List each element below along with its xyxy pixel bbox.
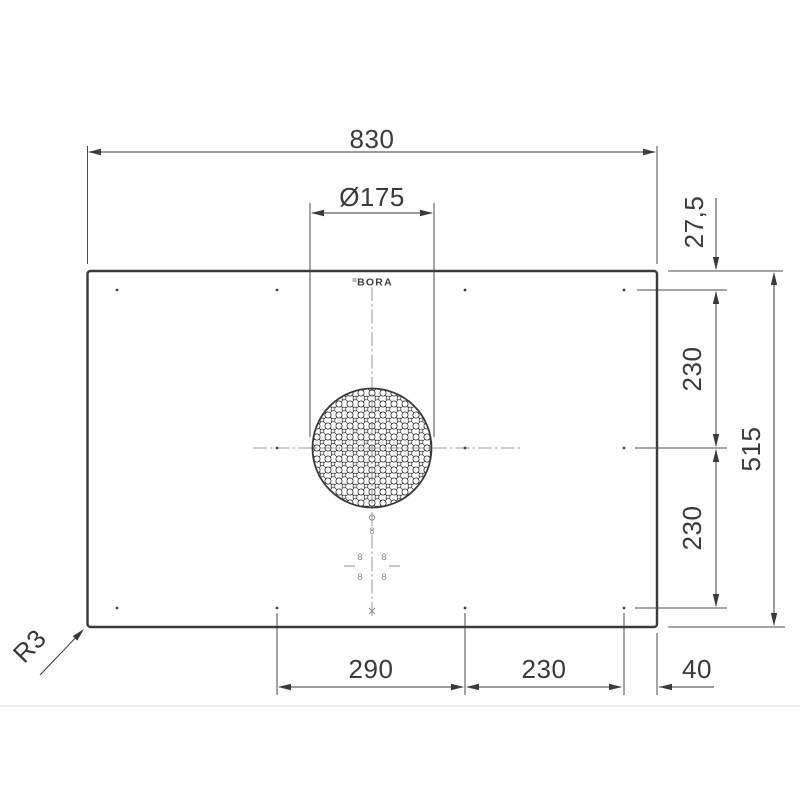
display-digit: 8 xyxy=(369,526,374,536)
bora-logo: BORA xyxy=(353,277,393,289)
display-digit: 8 xyxy=(357,572,362,582)
technical-drawing-page: BORA 8 8 8 8 8 xyxy=(0,0,800,800)
dim-bottom-mid-span: 230 xyxy=(522,654,567,684)
dim-bottom-left-span: 290 xyxy=(349,654,394,684)
dim-top-edge-offset: 27,5 xyxy=(679,196,709,249)
dim-right-upper-span: 230 xyxy=(677,347,707,392)
dim-total-width: 830 xyxy=(350,124,395,154)
dim-intake-diameter: Ø175 xyxy=(339,182,405,212)
display-digit: 8 xyxy=(357,552,362,562)
display-digit: 8 xyxy=(381,552,386,562)
dim-total-depth: 515 xyxy=(736,427,766,472)
display-digit: 8 xyxy=(381,572,386,582)
bora-logo-mark-icon xyxy=(353,278,357,282)
dim-bottom-right-offset: 40 xyxy=(682,654,712,684)
dim-right-lower-span: 230 xyxy=(677,506,707,551)
air-intake-grille xyxy=(313,389,432,508)
cooktop-dimension-drawing: BORA 8 8 8 8 8 xyxy=(0,0,800,800)
bora-logo-text: BORA xyxy=(357,277,393,289)
dim-corner-radius: R3 xyxy=(7,623,52,668)
